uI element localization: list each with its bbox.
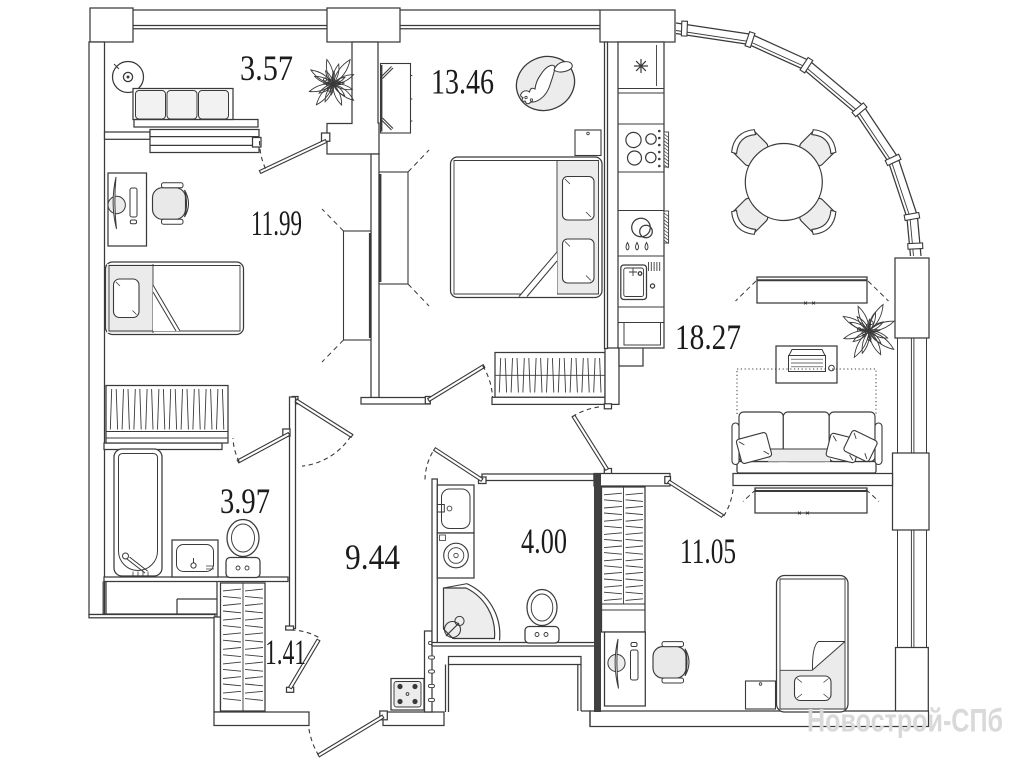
svg-text:9.44: 9.44 <box>345 537 400 577</box>
svg-text:18.27: 18.27 <box>675 317 741 357</box>
svg-text:11.05: 11.05 <box>680 531 736 571</box>
svg-text:3.57: 3.57 <box>240 48 293 88</box>
svg-text:1.41: 1.41 <box>265 632 306 672</box>
svg-text:11.99: 11.99 <box>251 203 302 243</box>
svg-text:13.46: 13.46 <box>431 62 494 102</box>
svg-text:4.00: 4.00 <box>521 521 567 561</box>
svg-text:3.97: 3.97 <box>220 481 270 521</box>
svg-text:Новострой-СПб: Новострой-СПб <box>807 703 1003 739</box>
